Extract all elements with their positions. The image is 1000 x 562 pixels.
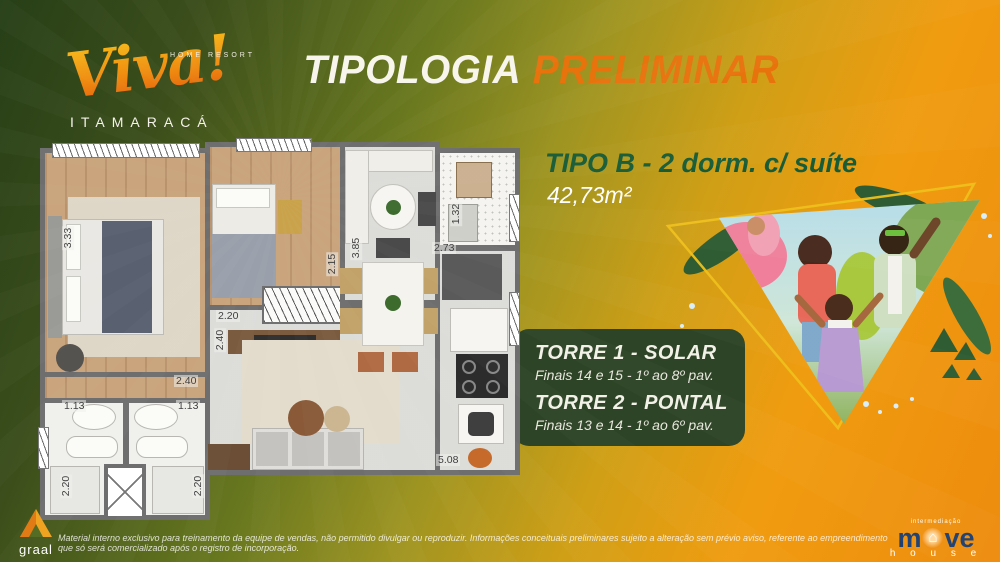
dining-chair xyxy=(340,268,362,294)
sink-basin xyxy=(468,412,494,436)
coffee-table-small xyxy=(324,406,350,432)
burner xyxy=(486,380,500,394)
dim-corridor: 2.40 xyxy=(214,328,226,352)
dining-chair-terracotta xyxy=(358,352,384,372)
coffee-table xyxy=(288,400,324,436)
house-icon: ⌂ xyxy=(922,528,943,549)
accent-pillow xyxy=(278,200,302,234)
home-resort-tagline: HOME RESORT xyxy=(170,52,255,59)
dim-suite-length: 3.33 xyxy=(62,226,74,250)
dim-kitchen-length: 5.08 xyxy=(436,454,460,466)
dim-suite-width: 2.40 xyxy=(174,375,198,387)
viva-itamaraca-logo: Viva! HOME RESORT ITAMARACÁ xyxy=(48,22,268,134)
window-bedroom2 xyxy=(236,138,312,152)
dim-bed2-length: 2.15 xyxy=(326,252,338,276)
dining-chair xyxy=(340,308,362,334)
collage-graphic xyxy=(652,156,1000,451)
sofa-cushion xyxy=(292,432,324,466)
move-house-sub: h o u s e xyxy=(880,548,992,559)
title-word-preliminar: PRELIMINAR xyxy=(533,48,779,92)
sofa-cushion xyxy=(256,432,288,466)
dim-service-width: 1.32 xyxy=(450,202,462,226)
dim-bath-right-width: 1.13 xyxy=(176,400,200,412)
unit-area: 42,73m² xyxy=(547,182,631,209)
graal-logo: graal xyxy=(14,507,58,557)
window-suite xyxy=(52,143,200,158)
double-bed-headboard xyxy=(48,216,62,338)
chair xyxy=(376,238,410,258)
family-photo-collage xyxy=(652,156,1000,451)
dim-bath-left-length: 2.20 xyxy=(60,474,72,498)
pillow xyxy=(66,276,81,322)
title-word-tipologia: TIPOLOGIA xyxy=(303,48,521,92)
page-title: TIPOLOGIAPRELIMINAR xyxy=(303,48,779,93)
service-table xyxy=(456,162,492,198)
sofa-cushion xyxy=(328,432,360,466)
pillow xyxy=(216,188,270,208)
dining-chair-terracotta xyxy=(392,352,418,372)
graal-triangle-icon xyxy=(16,507,56,539)
shaft-box xyxy=(104,464,146,520)
viva-script-logo: Viva! xyxy=(62,20,234,112)
chair xyxy=(418,192,436,226)
toilet xyxy=(136,436,188,458)
table-plant xyxy=(386,200,401,215)
graal-label: graal xyxy=(14,542,58,557)
wardrobe xyxy=(262,286,342,324)
dim-living-length: 3.85 xyxy=(350,236,362,260)
double-bed-blanket xyxy=(102,221,152,333)
tv-console xyxy=(208,444,250,470)
window-bath-left xyxy=(38,427,49,469)
window-service xyxy=(509,194,520,242)
dining-chair xyxy=(424,268,438,294)
location-label: ITAMARACÁ xyxy=(70,114,214,130)
bath-sink xyxy=(134,404,178,430)
burner xyxy=(462,380,476,394)
burner xyxy=(462,360,476,374)
dining-chair xyxy=(424,308,438,334)
pan xyxy=(468,448,492,468)
move-house-logo: intermediação m ⌂ ve h o u s e xyxy=(880,519,992,559)
marketing-slide: Viva! HOME RESORT ITAMARACÁ TIPOLOGIAPRE… xyxy=(0,0,1000,562)
dim-bath-right-length: 2.20 xyxy=(192,474,204,498)
floor-plan: 3.33 2.20 2.40 2.40 1.13 1.13 2.20 2.20 … xyxy=(40,142,520,524)
dining-plant xyxy=(385,295,401,311)
pouf xyxy=(56,344,84,372)
burner xyxy=(486,360,500,374)
kitchen-counter xyxy=(450,308,508,352)
dim-bath-left-width: 1.13 xyxy=(62,400,86,412)
corner-sofa xyxy=(345,150,369,244)
fridge xyxy=(442,254,502,300)
window-kitchen xyxy=(509,292,520,346)
toilet xyxy=(66,436,118,458)
dim-bed2-width: 2.20 xyxy=(216,310,240,322)
dim-living-width: 2.73 xyxy=(432,242,456,254)
disclaimer-text: Material interno exclusivo para treiname… xyxy=(58,533,888,553)
